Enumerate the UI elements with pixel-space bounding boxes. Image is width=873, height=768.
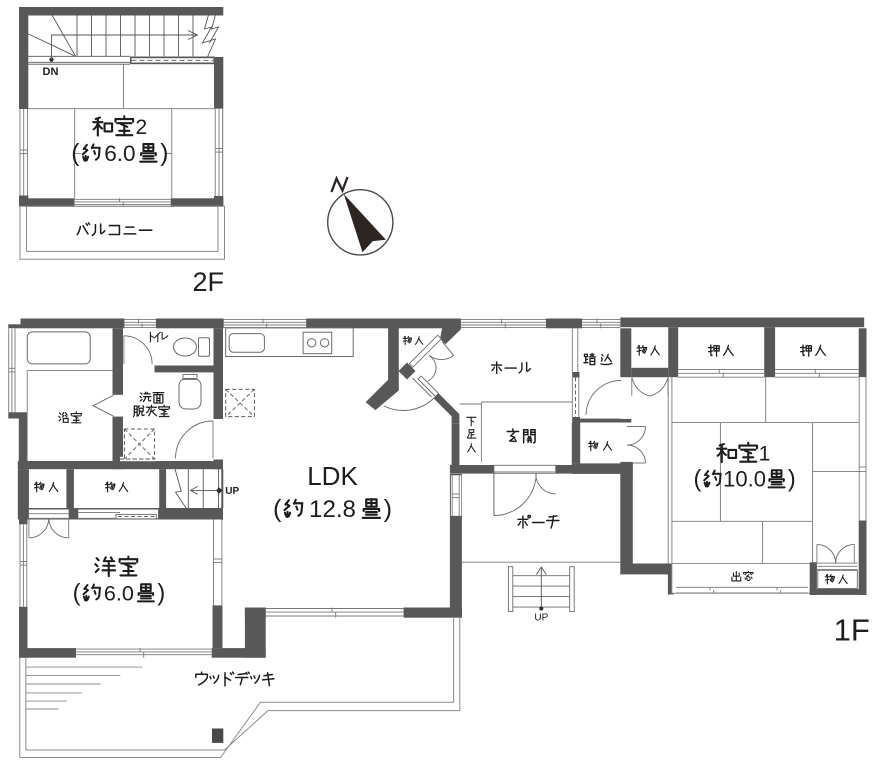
svg-text:10.0: 10.0: [723, 467, 766, 492]
svg-text:6.0: 6.0: [104, 581, 134, 606]
svg-text:1: 1: [759, 442, 771, 465]
svg-text:UP: UP: [225, 486, 239, 497]
svg-text:(: (: [273, 495, 282, 523]
svg-text:12.8: 12.8: [309, 496, 356, 523]
svg-text:UP: UP: [534, 612, 548, 623]
svg-text:2F: 2F: [193, 267, 225, 297]
svg-text:): ): [788, 467, 796, 493]
svg-text:): ): [384, 495, 392, 523]
svg-text:(: (: [73, 581, 81, 607]
svg-text:(: (: [693, 467, 701, 493]
svg-text:2: 2: [135, 116, 147, 139]
svg-text:): ): [157, 581, 165, 607]
svg-text:6.0: 6.0: [104, 141, 135, 166]
svg-text:LDK: LDK: [307, 461, 358, 491]
svg-text:DN: DN: [43, 66, 59, 78]
svg-text:): ): [160, 140, 168, 167]
svg-text:(: (: [71, 140, 80, 167]
svg-text:1F: 1F: [834, 613, 870, 648]
